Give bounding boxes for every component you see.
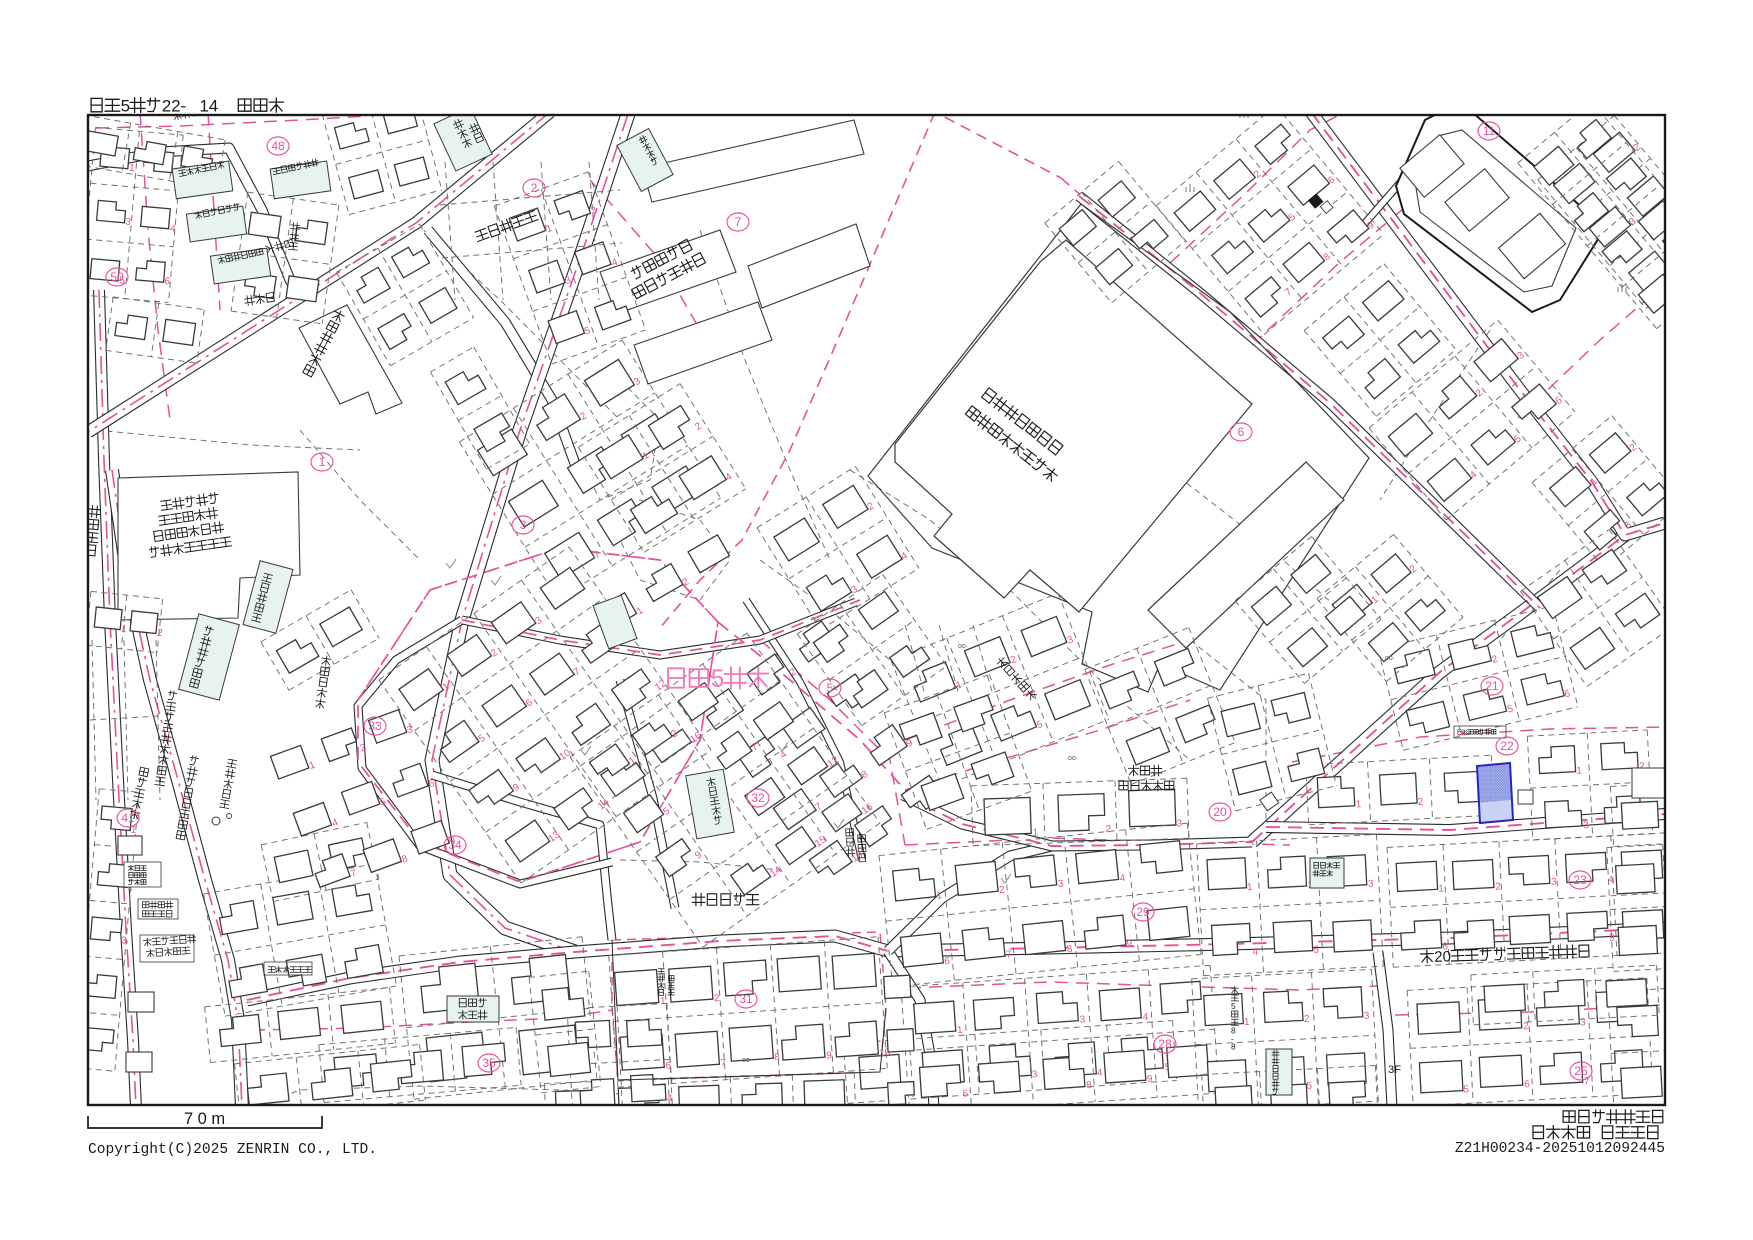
svg-text:41: 41 [121, 811, 135, 825]
svg-text:3: 3 [1368, 879, 1375, 890]
svg-text:5: 5 [1313, 945, 1320, 956]
svg-text:2: 2 [1495, 881, 1502, 892]
svg-text:33: 33 [368, 719, 382, 733]
svg-text:2: 2 [531, 181, 538, 195]
svg-text:1: 1 [1033, 827, 1039, 838]
svg-text:8: 8 [1231, 1042, 1236, 1052]
svg-text:25: 25 [1574, 1064, 1588, 1078]
svg-text:3: 3 [1583, 820, 1590, 831]
svg-text:29: 29 [1136, 905, 1150, 919]
svg-text:5: 5 [121, 97, 130, 116]
svg-text:5: 5 [1463, 1084, 1470, 1095]
svg-text:70m: 70m [184, 1110, 230, 1128]
svg-text:22: 22 [1500, 739, 1514, 753]
svg-text:1: 1 [199, 97, 208, 116]
svg-text:6: 6 [1238, 425, 1245, 439]
svg-text:1: 1 [612, 1040, 619, 1051]
svg-text:50: 50 [110, 270, 124, 284]
svg-text:5: 5 [827, 681, 834, 695]
svg-text:oo·: oo· [1385, 655, 1395, 662]
svg-text:5: 5 [711, 666, 725, 693]
svg-text:1: 1 [1438, 883, 1445, 894]
svg-text:-: - [181, 97, 187, 116]
svg-text:23: 23 [1573, 873, 1587, 887]
svg-text:4: 4 [667, 1093, 674, 1104]
svg-text:32: 32 [751, 791, 765, 805]
svg-text:20: 20 [1213, 805, 1227, 819]
svg-text:5: 5 [1231, 1001, 1236, 1011]
svg-text:2: 2 [1105, 824, 1111, 835]
svg-text:28: 28 [1158, 1037, 1172, 1051]
svg-text:31: 31 [739, 992, 753, 1006]
svg-text:1: 1 [1576, 765, 1583, 776]
svg-text:1: 1 [1247, 882, 1254, 893]
svg-text:oo·: oo· [958, 643, 968, 650]
svg-text:3: 3 [520, 518, 527, 532]
svg-text:F: F [1394, 1064, 1401, 1076]
svg-text:3: 3 [1551, 877, 1558, 888]
svg-text:0: 0 [1442, 948, 1451, 965]
svg-text:2: 2 [162, 97, 171, 116]
svg-text:oo·: oo· [742, 1057, 752, 1064]
svg-text:1: 1 [319, 455, 326, 469]
svg-text:6: 6 [1524, 1079, 1531, 1090]
svg-text:4: 4 [1252, 947, 1259, 958]
svg-text:3: 3 [1364, 1011, 1371, 1022]
svg-text:21: 21 [1485, 679, 1499, 693]
svg-text:2: 2 [171, 97, 180, 116]
svg-text:34: 34 [448, 838, 462, 852]
svg-text:oo·: oo· [1068, 755, 1078, 762]
svg-text:Copyright(C)2025 ZENRIN CO., L: Copyright(C)2025 ZENRIN CO., LTD. [88, 1142, 377, 1158]
svg-text:2: 2 [1523, 1021, 1530, 1032]
svg-text:35: 35 [482, 1056, 496, 1070]
svg-text:48: 48 [271, 139, 285, 153]
svg-text:1: 1 [1355, 799, 1362, 810]
svg-text:11: 11 [1483, 124, 1496, 138]
svg-text:7: 7 [735, 215, 742, 229]
svg-text:2: 2 [1417, 797, 1424, 808]
svg-text:1: 1 [1244, 1017, 1251, 1028]
svg-text:4: 4 [209, 97, 218, 116]
svg-text:Z21H00234-20251012092445: Z21H00234-20251012092445 [1455, 1141, 1665, 1157]
svg-text:2: 2 [1304, 1014, 1311, 1025]
